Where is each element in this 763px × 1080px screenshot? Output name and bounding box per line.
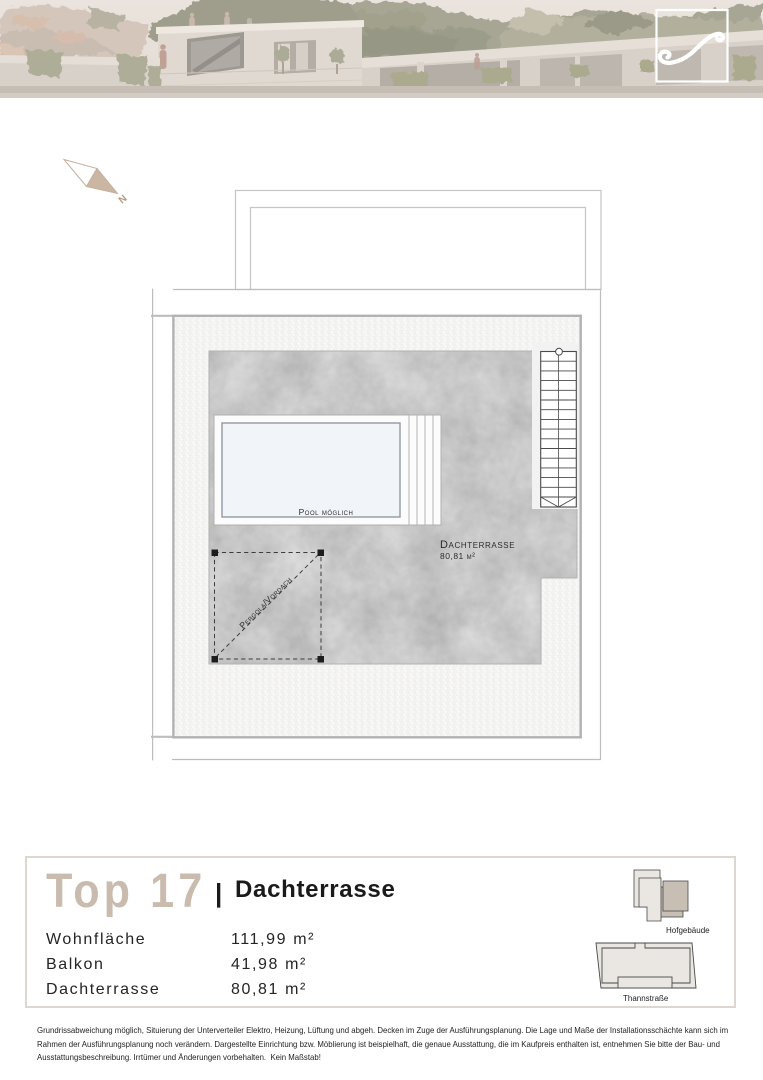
svg-text:Dachterrasse: Dachterrasse — [440, 539, 515, 551]
svg-text:Pool möglich: Pool möglich — [299, 507, 354, 517]
svg-text:Thannstraße: Thannstraße — [623, 994, 669, 1003]
svg-text:Hofgebäude: Hofgebäude — [666, 926, 710, 935]
svg-text:N: N — [117, 193, 130, 206]
svg-text:80,81 m²: 80,81 m² — [440, 551, 475, 561]
